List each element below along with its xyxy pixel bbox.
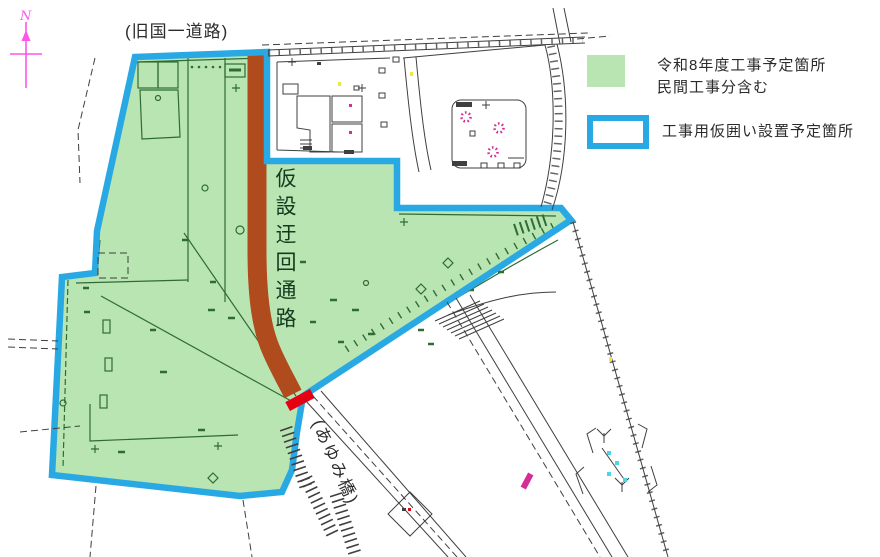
tree-symbol	[489, 148, 498, 157]
tree-symbol	[462, 113, 471, 122]
legend: 令和8年度工事予定箇所 民間工事分含む 工事用仮囲い設置予定箇所	[587, 55, 854, 149]
north-letter: N	[19, 9, 32, 24]
legend-swatch-temporary-fence	[587, 115, 649, 149]
legend-label-temporary-fence: 工事用仮囲い設置予定箇所	[662, 115, 854, 143]
site-plan-page: N (旧国一道路) 仮設迂回通路 (あゆみ橋) 令和8年度工事予定箇所 民間工事…	[0, 0, 880, 557]
tree-symbol	[495, 124, 504, 133]
north-arrow-icon: N	[10, 9, 42, 88]
legend-label-planned-work-line2: 民間工事分含む	[657, 77, 826, 99]
legend-swatch-planned-work-area	[587, 55, 625, 87]
legend-item-planned-work: 令和8年度工事予定箇所 民間工事分含む	[587, 55, 854, 99]
legend-item-temporary-fence: 工事用仮囲い設置予定箇所	[587, 115, 854, 149]
legend-label-planned-work-line1: 令和8年度工事予定箇所	[657, 55, 826, 77]
detour-route-label: 仮設迂回通路	[269, 167, 299, 335]
old-route1-road-label: (旧国一道路)	[125, 17, 228, 42]
